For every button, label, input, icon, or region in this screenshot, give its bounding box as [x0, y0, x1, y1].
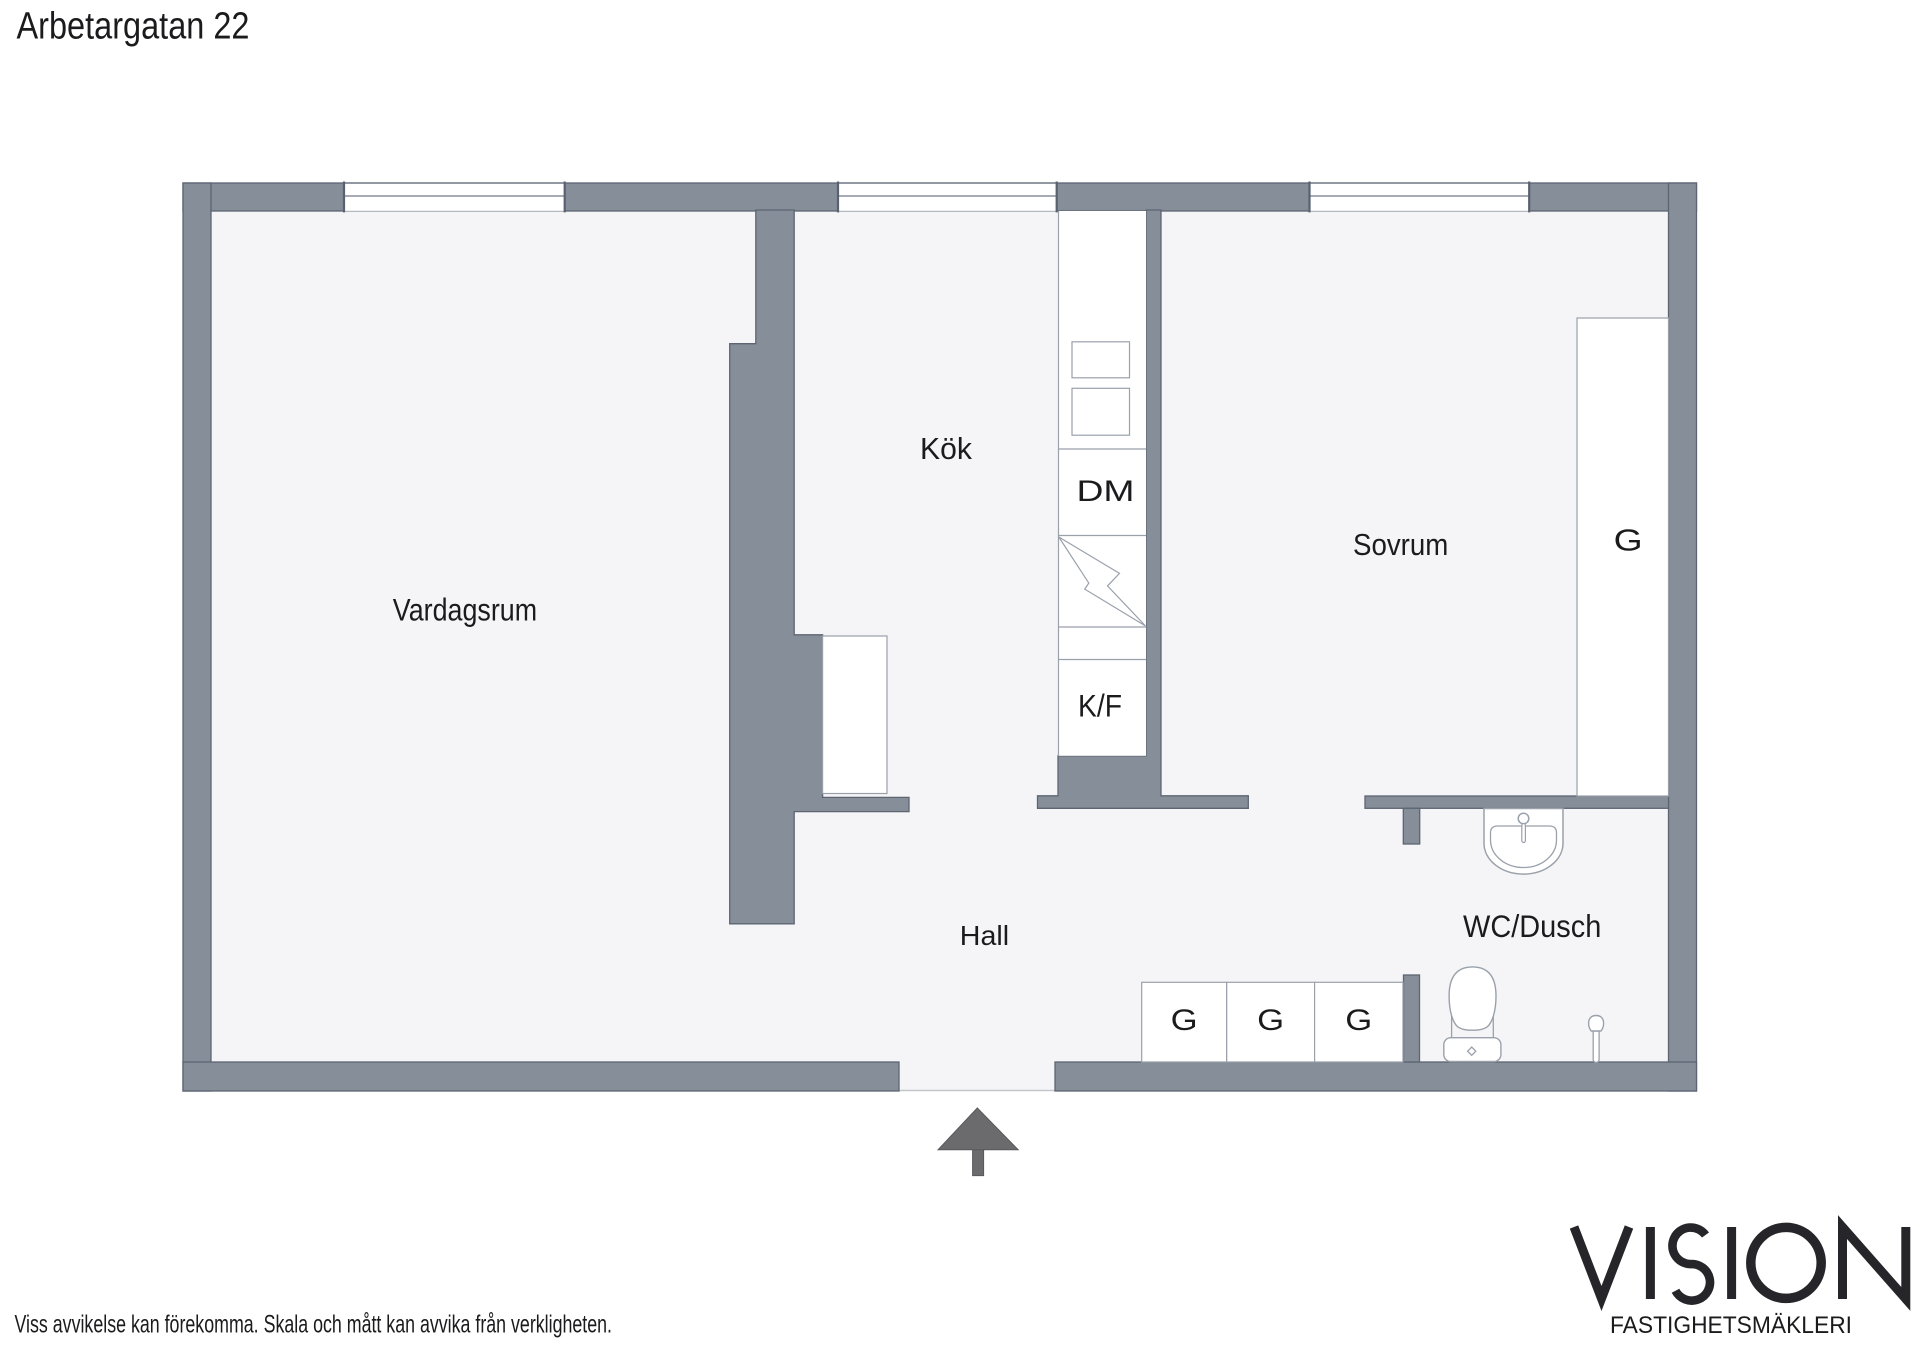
svg-text:G: G	[1257, 1004, 1284, 1037]
svg-text:Viss avvikelse kan förekomma.: Viss avvikelse kan förekomma. Skala och …	[15, 1311, 613, 1338]
svg-text:FASTIGHETSMÄKLERI: FASTIGHETSMÄKLERI	[1610, 1312, 1852, 1339]
svg-text:G: G	[1345, 1004, 1372, 1037]
svg-text:G: G	[1614, 524, 1643, 558]
svg-text:Hall: Hall	[960, 920, 1009, 951]
svg-text:Kök: Kök	[920, 432, 973, 466]
svg-text:Vardagsrum: Vardagsrum	[393, 593, 537, 628]
svg-text:Sovrum: Sovrum	[1353, 528, 1448, 562]
svg-text:K/F: K/F	[1078, 689, 1122, 724]
svg-text:DM: DM	[1077, 475, 1135, 508]
svg-text:WC/Dusch: WC/Dusch	[1463, 909, 1601, 944]
svg-text:Arbetargatan 22: Arbetargatan 22	[17, 5, 250, 47]
svg-text:G: G	[1171, 1004, 1198, 1037]
